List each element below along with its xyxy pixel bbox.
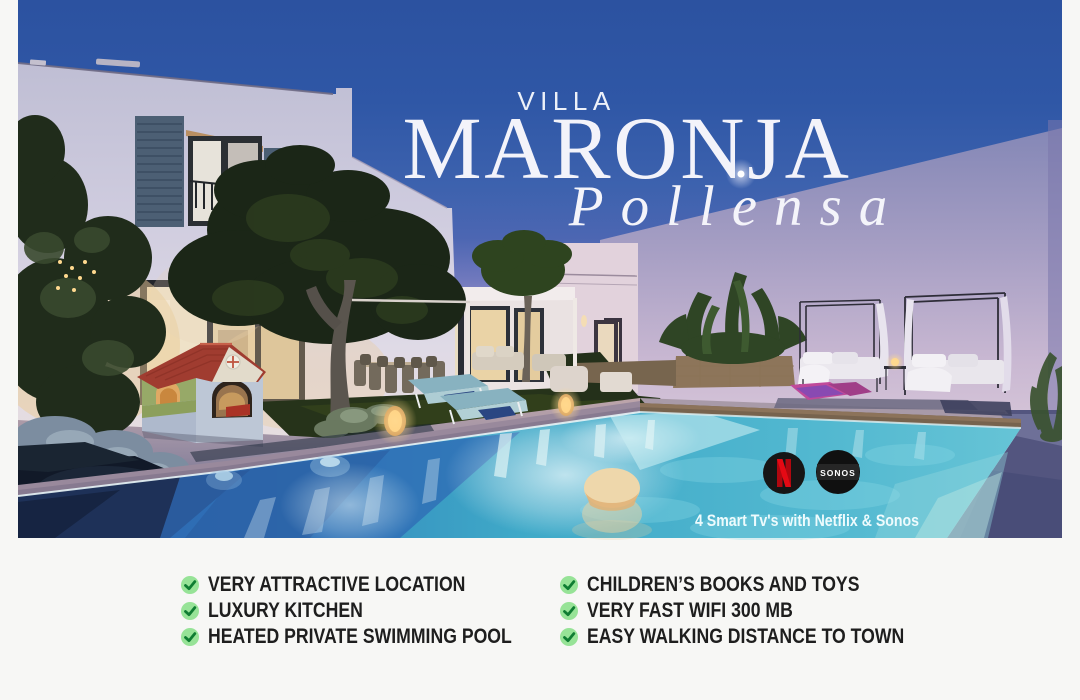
svg-text:4 Smart Tv's with Netflix & So: 4 Smart Tv's with Netflix & Sonos [695,512,919,530]
svg-text:SONOS: SONOS [820,468,856,478]
